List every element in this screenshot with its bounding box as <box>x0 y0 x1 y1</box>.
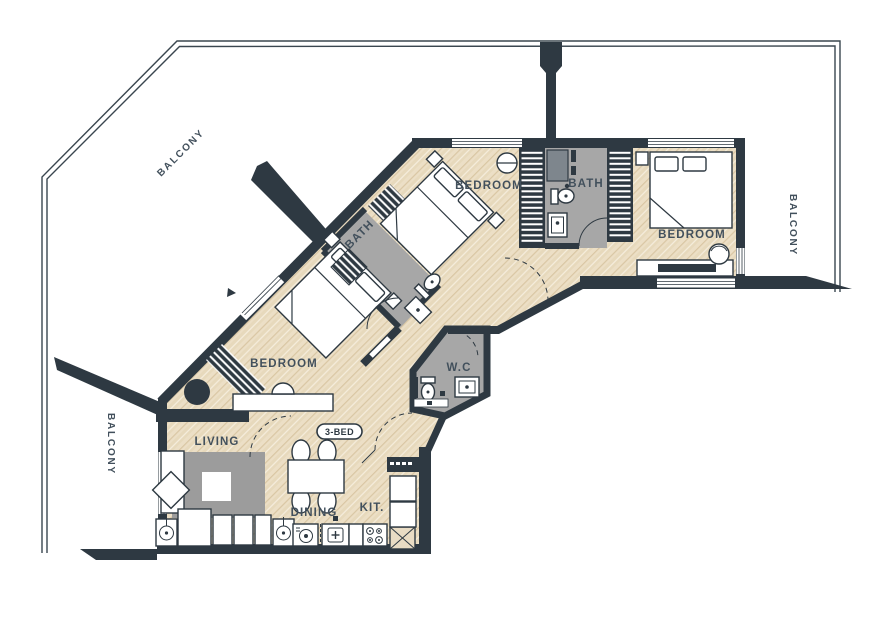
lamp-dot <box>282 531 285 534</box>
wc-label: W.C <box>446 362 471 374</box>
bedroom-mid-desk <box>233 394 333 411</box>
counter <box>349 524 363 546</box>
floor-plan-drawing: BALCONY BALCONY BALCONY BEDROOM BATH BED… <box>0 0 871 623</box>
window-bedroom-top <box>452 139 522 147</box>
burner-dot <box>369 539 371 541</box>
shower-bar-icon <box>571 150 576 162</box>
washer-dot <box>304 534 308 538</box>
burner-dot <box>378 539 380 541</box>
sofa-cushion <box>213 515 232 545</box>
window-bedroom-right-bottom <box>657 279 735 288</box>
toilet-drain <box>564 194 567 197</box>
sofa-cushion <box>234 515 253 545</box>
wall-kitchen-east <box>419 447 431 552</box>
balcony-right-label: BALCONY <box>787 194 798 256</box>
wall-bath-top-south <box>545 243 579 249</box>
nightstand <box>636 152 648 165</box>
tall-unit <box>390 502 416 527</box>
fixture-dot <box>440 391 445 396</box>
toilet-tank <box>551 189 558 204</box>
wardrobe-bath-left-hatch <box>522 150 543 244</box>
coffee-table <box>202 472 231 501</box>
dining-table <box>288 460 344 493</box>
dining-label: DINING <box>291 507 338 519</box>
pillow <box>683 157 706 171</box>
tall-unit <box>390 476 416 501</box>
burner-dot <box>369 530 371 532</box>
side-table-dark <box>184 379 210 405</box>
wc-shelf-dot <box>427 401 432 405</box>
bath-top-label: BATH <box>568 178 604 190</box>
sofa-chaise <box>178 509 211 546</box>
bedroom-mid-label: BEDROOM <box>250 358 318 370</box>
toilet-tank <box>421 377 435 383</box>
floor-plan: BALCONY BALCONY BALCONY BEDROOM BATH BED… <box>0 0 871 623</box>
bedroom-right-label: BEDROOM <box>658 229 726 241</box>
shower <box>547 150 568 181</box>
shower-bar-icon <box>571 166 576 175</box>
wc-slab <box>413 377 418 398</box>
kitchen-label: KIT. <box>360 502 385 514</box>
window-bedroom-right-top <box>648 139 734 147</box>
toilet-drain <box>427 391 430 394</box>
balcony-left-label: BALCONY <box>105 413 116 475</box>
wardrobe-bath-right-hatch <box>610 150 631 238</box>
sofa-cushion <box>255 515 271 545</box>
stove <box>363 524 387 546</box>
sink-drain <box>556 221 560 225</box>
burner-dot <box>378 530 380 532</box>
sink-drain <box>465 385 469 389</box>
lamp-dot <box>165 531 168 534</box>
living-label: LIVING <box>195 436 240 448</box>
pillow <box>655 157 678 171</box>
desk-chair <box>709 244 729 264</box>
desk-console <box>658 264 716 272</box>
window-bedroom-right-east <box>737 248 745 274</box>
bedroom-top-label: BEDROOM <box>455 180 523 192</box>
unit-badge-label: 3-BED <box>325 427 354 437</box>
unit-badge: 3-BED <box>317 424 362 439</box>
